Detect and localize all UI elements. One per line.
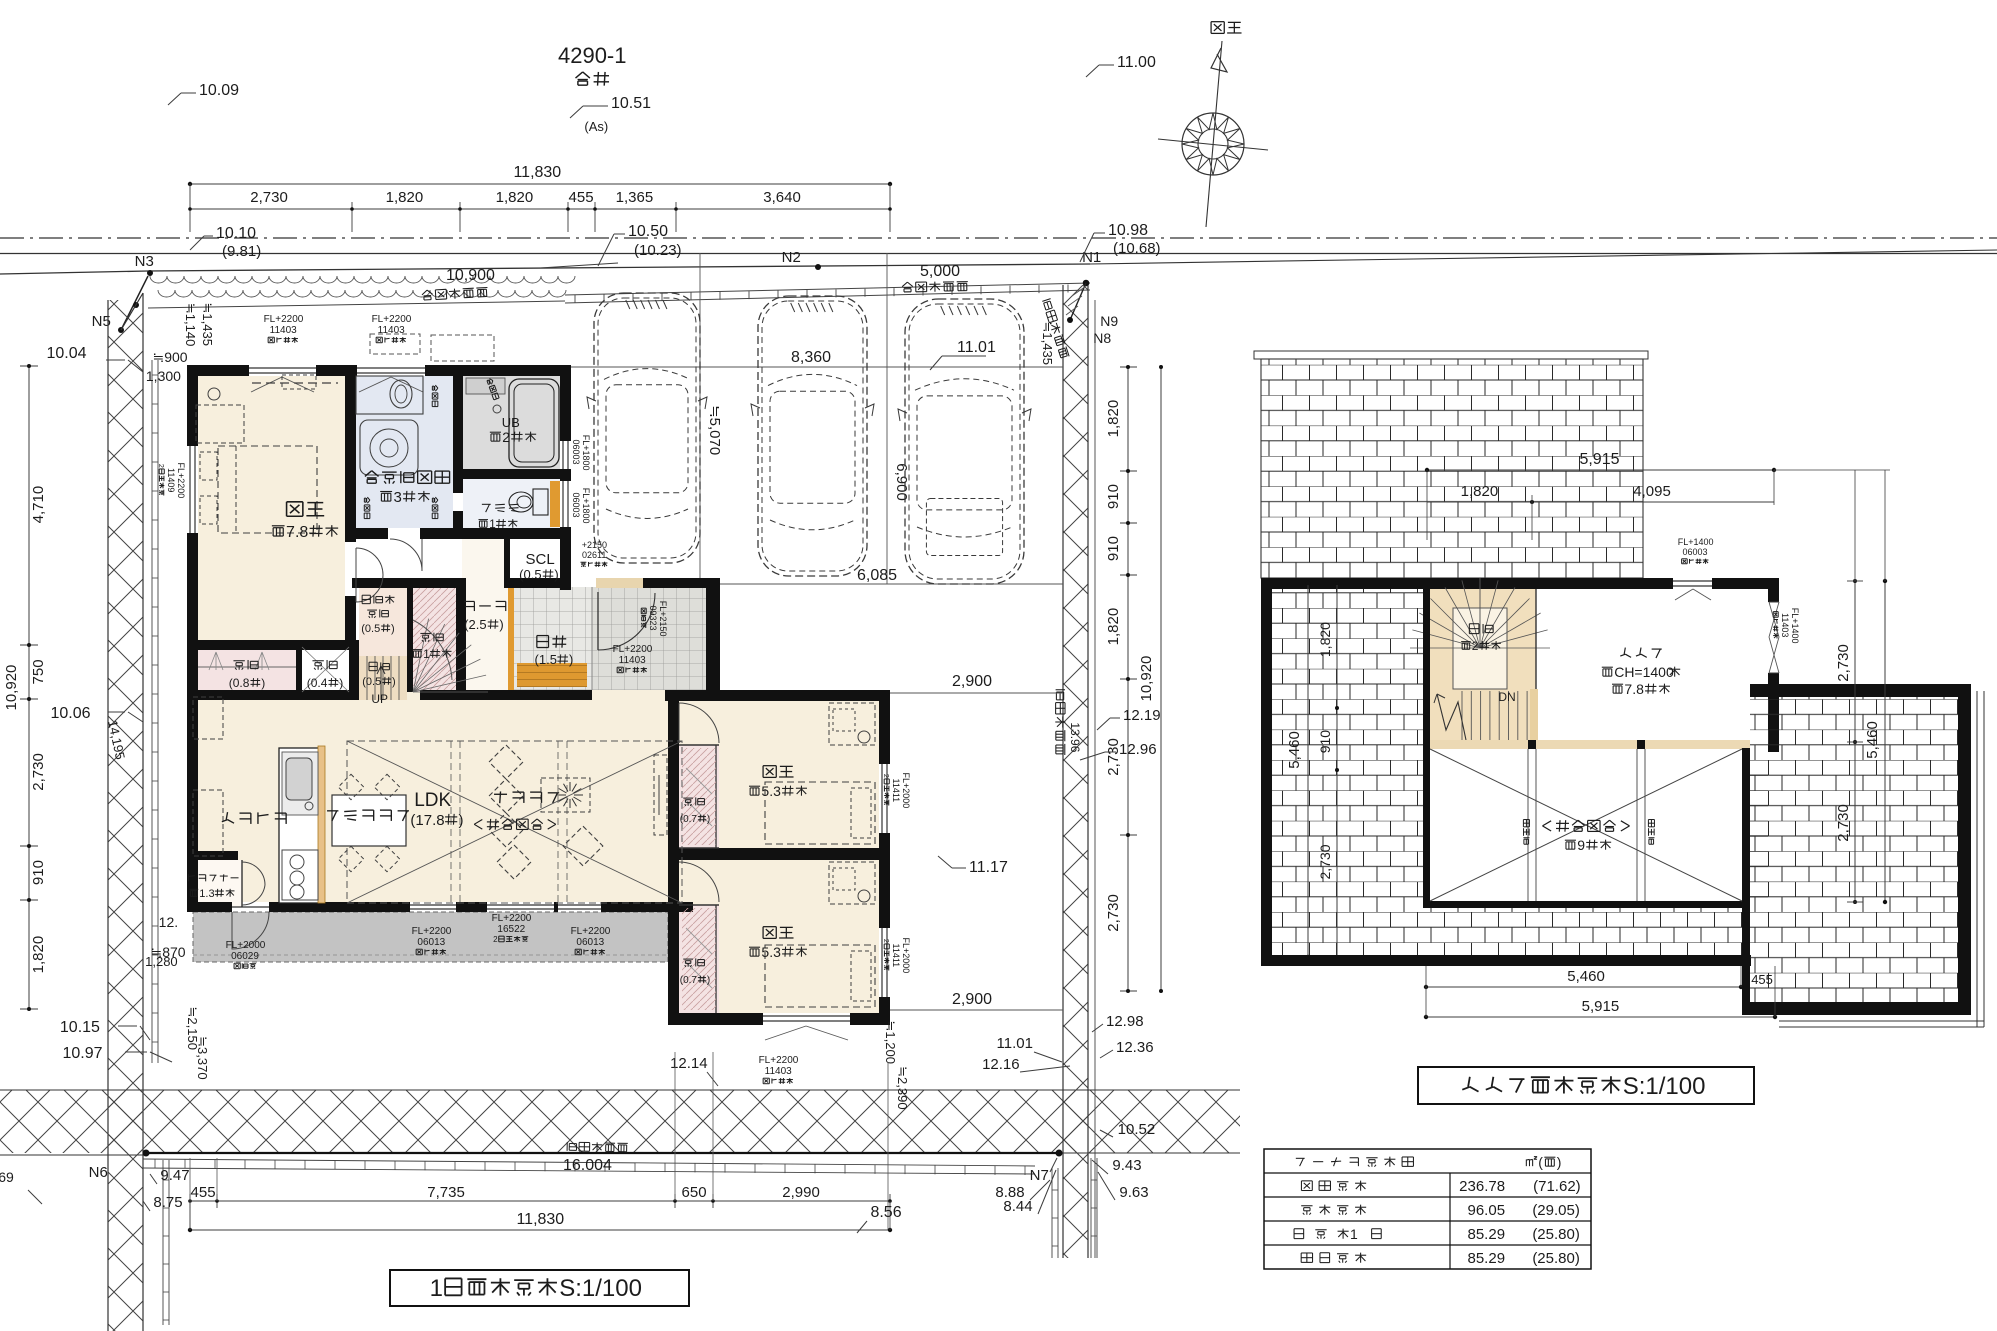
svg-text:5,915: 5,915 [1579,451,1619,468]
svg-text:FL+2200: FL+2200 [571,926,611,937]
svg-text:2,730: 2,730 [1317,844,1333,879]
svg-text:10,900: 10,900 [446,267,495,284]
svg-text:FL+2000: FL+2000 [226,940,266,951]
svg-text:06013: 06013 [576,937,604,948]
svg-text:16522: 16522 [497,924,525,935]
svg-text:11,830: 11,830 [513,164,561,181]
svg-text:2: 2 [882,939,891,943]
svg-text:11411: 11411 [891,779,901,803]
svg-text:+2150: +2150 [582,540,607,550]
svg-text:2: 2 [1472,639,1479,653]
svg-text:6,900: 6,900 [893,463,910,501]
svg-text:910: 910 [1105,484,1122,509]
svg-text:2,730: 2,730 [250,189,288,206]
svg-text:FL+2200: FL+2200 [412,926,452,937]
svg-text:FL+1400: FL+1400 [1678,537,1714,547]
svg-text:9.63: 9.63 [1119,1184,1148,1201]
svg-text:1,300: 1,300 [146,368,181,384]
svg-text:N9: N9 [1100,313,1118,329]
svg-text:10.10: 10.10 [216,225,256,242]
svg-text:2: 2 [157,464,166,468]
svg-text:≒3,370: ≒3,370 [195,1036,210,1079]
svg-text:06003: 06003 [571,493,581,518]
svg-text:09323: 09323 [648,606,658,631]
svg-text:11403: 11403 [765,1066,793,1077]
svg-text:≒1,435: ≒1,435 [1040,322,1055,365]
svg-text:2,730: 2,730 [1835,644,1852,682]
svg-text:(25.80): (25.80) [1532,1226,1580,1243]
svg-text:5,000: 5,000 [920,263,960,280]
svg-text:1,820: 1,820 [1105,608,1122,646]
svg-text:3,640: 3,640 [763,189,801,206]
svg-text:2,900: 2,900 [952,991,992,1008]
svg-text:FL+1800: FL+1800 [581,435,591,471]
svg-text:FL+2200: FL+2200 [264,314,304,325]
svg-text:(1.5: (1.5 [535,652,557,667]
svg-text:≒1,200: ≒1,200 [883,1021,898,1064]
svg-text:N2: N2 [782,249,801,266]
svg-text:455: 455 [191,1184,216,1201]
svg-text:): ) [339,676,343,690]
svg-text:5,915: 5,915 [1582,998,1620,1015]
svg-text:12.36: 12.36 [1116,1039,1154,1056]
svg-text:DN: DN [1498,690,1515,704]
svg-text:): ) [391,623,395,635]
svg-text:85.29: 85.29 [1468,1250,1506,1267]
svg-text:FL+2200: FL+2200 [372,314,412,325]
svg-text:06013: 06013 [417,937,445,948]
svg-text:910: 910 [30,860,47,885]
svg-text:12.96: 12.96 [1119,741,1157,758]
svg-text:FL+2000: FL+2000 [901,773,911,809]
svg-text:FL+1800: FL+1800 [581,488,591,524]
svg-text:): ) [459,812,464,829]
svg-text:(10.68): (10.68) [1113,240,1161,257]
svg-text:(0.5: (0.5 [361,623,380,635]
svg-text:13.96: 13.96 [1068,722,1082,752]
svg-text:750: 750 [30,659,47,684]
svg-text:): ) [392,676,396,688]
svg-text:UB: UB [502,415,520,430]
svg-text:11403: 11403 [619,655,647,666]
svg-text:650: 650 [682,1184,707,1201]
svg-text:1: 1 [489,517,496,531]
svg-text:2,730: 2,730 [1105,894,1122,932]
svg-text:5,460: 5,460 [1864,721,1881,759]
svg-text:10.51: 10.51 [611,95,651,112]
svg-text:5.3: 5.3 [761,944,781,960]
svg-text:(2.5: (2.5 [464,617,486,632]
svg-text:2,730: 2,730 [1835,804,1852,842]
svg-text:): ) [261,676,265,690]
svg-text:8.56: 8.56 [870,1204,901,1221]
svg-text:1,365: 1,365 [616,189,654,206]
svg-text:8,360: 8,360 [791,349,831,366]
svg-text:(9.81): (9.81) [222,243,261,260]
svg-text:(0.5: (0.5 [519,567,541,582]
svg-text:7.8: 7.8 [286,524,308,541]
svg-text:11,830: 11,830 [516,1211,564,1228]
svg-text:N3: N3 [135,253,154,270]
svg-text:): ) [554,567,558,582]
svg-text:910: 910 [1105,536,1122,561]
svg-text:S:1/100: S:1/100 [559,1275,642,1302]
svg-text:2,900: 2,900 [952,673,992,690]
svg-text:N6: N6 [89,1164,108,1181]
svg-text:11403: 11403 [1780,613,1790,637]
svg-text:N8: N8 [1093,330,1111,346]
svg-text:7,735: 7,735 [427,1184,465,1201]
svg-text:FL+2200: FL+2200 [176,463,186,499]
svg-text:11.01: 11.01 [957,339,996,356]
svg-text:≒2,390: ≒2,390 [895,1066,910,1109]
svg-text:69: 69 [0,1169,14,1185]
svg-text:8.75: 8.75 [153,1194,182,1211]
svg-text:12.98: 12.98 [1106,1013,1144,1030]
svg-text:06029: 06029 [231,951,259,962]
svg-text:≒1,435: ≒1,435 [200,303,215,346]
svg-text:): ) [569,652,573,667]
svg-text:7.8: 7.8 [1624,681,1644,697]
svg-text:1.3: 1.3 [199,888,214,900]
svg-text:1,820: 1,820 [1105,400,1122,438]
svg-text:06003: 06003 [571,440,581,465]
svg-text:02611: 02611 [582,550,606,560]
svg-text:(0.5: (0.5 [362,676,381,688]
svg-text:UP: UP [371,692,388,706]
svg-text:FL+2200: FL+2200 [492,913,532,924]
svg-text:1: 1 [430,1275,443,1302]
svg-text:(0.7: (0.7 [680,814,698,825]
svg-text:5,460: 5,460 [1286,731,1303,769]
svg-text:6,085: 6,085 [857,567,897,584]
svg-text:10,920: 10,920 [3,665,20,711]
svg-text:10,920: 10,920 [1138,656,1155,702]
svg-text:1,280: 1,280 [145,954,178,969]
svg-text:455: 455 [569,189,594,206]
svg-text:12.14: 12.14 [670,1055,708,1072]
svg-text:5,460: 5,460 [1567,968,1605,985]
svg-text:16.004: 16.004 [563,1157,612,1174]
svg-text:FL+2200: FL+2200 [613,644,653,655]
svg-text:(17.8: (17.8 [410,812,444,829]
svg-text:10.52: 10.52 [1118,1121,1156,1138]
svg-text:(71.62): (71.62) [1533,1178,1581,1195]
svg-text:96.05: 96.05 [1468,1202,1506,1219]
svg-text:(29.05): (29.05) [1532,1202,1580,1219]
svg-text:1: 1 [423,647,430,661]
svg-text:8.44: 8.44 [1003,1198,1032,1215]
svg-text:236.78: 236.78 [1459,1178,1505,1195]
svg-text:(0.4: (0.4 [307,676,328,690]
svg-text:(: ( [1538,1154,1543,1170]
svg-text:455: 455 [1751,972,1773,987]
svg-text:9.47: 9.47 [160,1167,189,1184]
svg-text:1: 1 [1350,1226,1358,1242]
svg-text:9.43: 9.43 [1112,1157,1141,1174]
svg-text:4290-1: 4290-1 [558,43,627,68]
svg-text:3: 3 [393,489,401,506]
svg-text:(10.23): (10.23) [634,242,682,259]
svg-text:1,820: 1,820 [1461,483,1499,500]
svg-text:1,820: 1,820 [496,189,534,206]
svg-text:10.09: 10.09 [199,82,239,99]
svg-text:): ) [707,975,710,986]
svg-text:11.17: 11.17 [969,859,1008,876]
svg-text:LDK: LDK [414,790,451,811]
svg-text:4,710: 4,710 [30,486,47,524]
svg-text:2,730: 2,730 [30,753,47,791]
svg-text:≒1,140: ≒1,140 [183,303,198,346]
svg-text:10.98: 10.98 [1108,222,1148,239]
svg-text:11409: 11409 [166,468,176,492]
svg-text:12.19: 12.19 [1123,707,1161,724]
svg-text:10.50: 10.50 [628,223,668,240]
svg-text:(0.7: (0.7 [680,975,698,986]
svg-text:10.97: 10.97 [62,1045,102,1062]
svg-text:11.01: 11.01 [996,1035,1032,1052]
svg-text:(As): (As) [584,119,608,134]
svg-text:1,820: 1,820 [386,189,424,206]
svg-text:1,820: 1,820 [30,936,47,974]
svg-text:2: 2 [882,774,891,778]
svg-text:06003: 06003 [1683,547,1708,557]
svg-text:FL+2150: FL+2150 [658,601,668,637]
svg-text:910: 910 [1317,730,1333,754]
svg-text:10.04: 10.04 [46,345,86,362]
svg-text:): ) [499,617,503,632]
svg-text:85.29: 85.29 [1468,1226,1506,1243]
svg-text:9: 9 [1577,837,1585,853]
svg-text:FL+2200: FL+2200 [759,1055,799,1066]
svg-text:10.06: 10.06 [50,705,90,722]
svg-text:12.16: 12.16 [982,1056,1020,1073]
svg-text:1,820: 1,820 [1317,622,1333,657]
svg-text:FL+1400: FL+1400 [1790,608,1800,644]
svg-text:11411: 11411 [891,944,901,968]
svg-text:(0.8: (0.8 [229,676,250,690]
svg-text:5.3: 5.3 [761,783,781,799]
svg-text:CH=1400: CH=1400 [1614,664,1674,680]
svg-text:N7: N7 [1030,1167,1049,1184]
svg-text:SCL: SCL [526,551,555,568]
svg-text:10.15: 10.15 [60,1019,100,1036]
svg-text:2,990: 2,990 [782,1184,820,1201]
svg-text:S:1/100: S:1/100 [1623,1073,1706,1100]
svg-text:(25.80): (25.80) [1532,1250,1580,1267]
svg-text:FL+2000: FL+2000 [901,938,911,974]
svg-text:): ) [707,814,710,825]
svg-text:11.00: 11.00 [1117,54,1156,71]
svg-text:11403: 11403 [270,325,298,336]
svg-text:2: 2 [502,429,510,445]
svg-text:4,095: 4,095 [1633,483,1671,500]
svg-text:≒900: ≒900 [152,349,187,365]
svg-text:≒5,070: ≒5,070 [706,405,723,455]
svg-text:2: 2 [493,935,498,944]
svg-text:): ) [1557,1154,1562,1170]
svg-text:12.: 12. [159,914,178,930]
